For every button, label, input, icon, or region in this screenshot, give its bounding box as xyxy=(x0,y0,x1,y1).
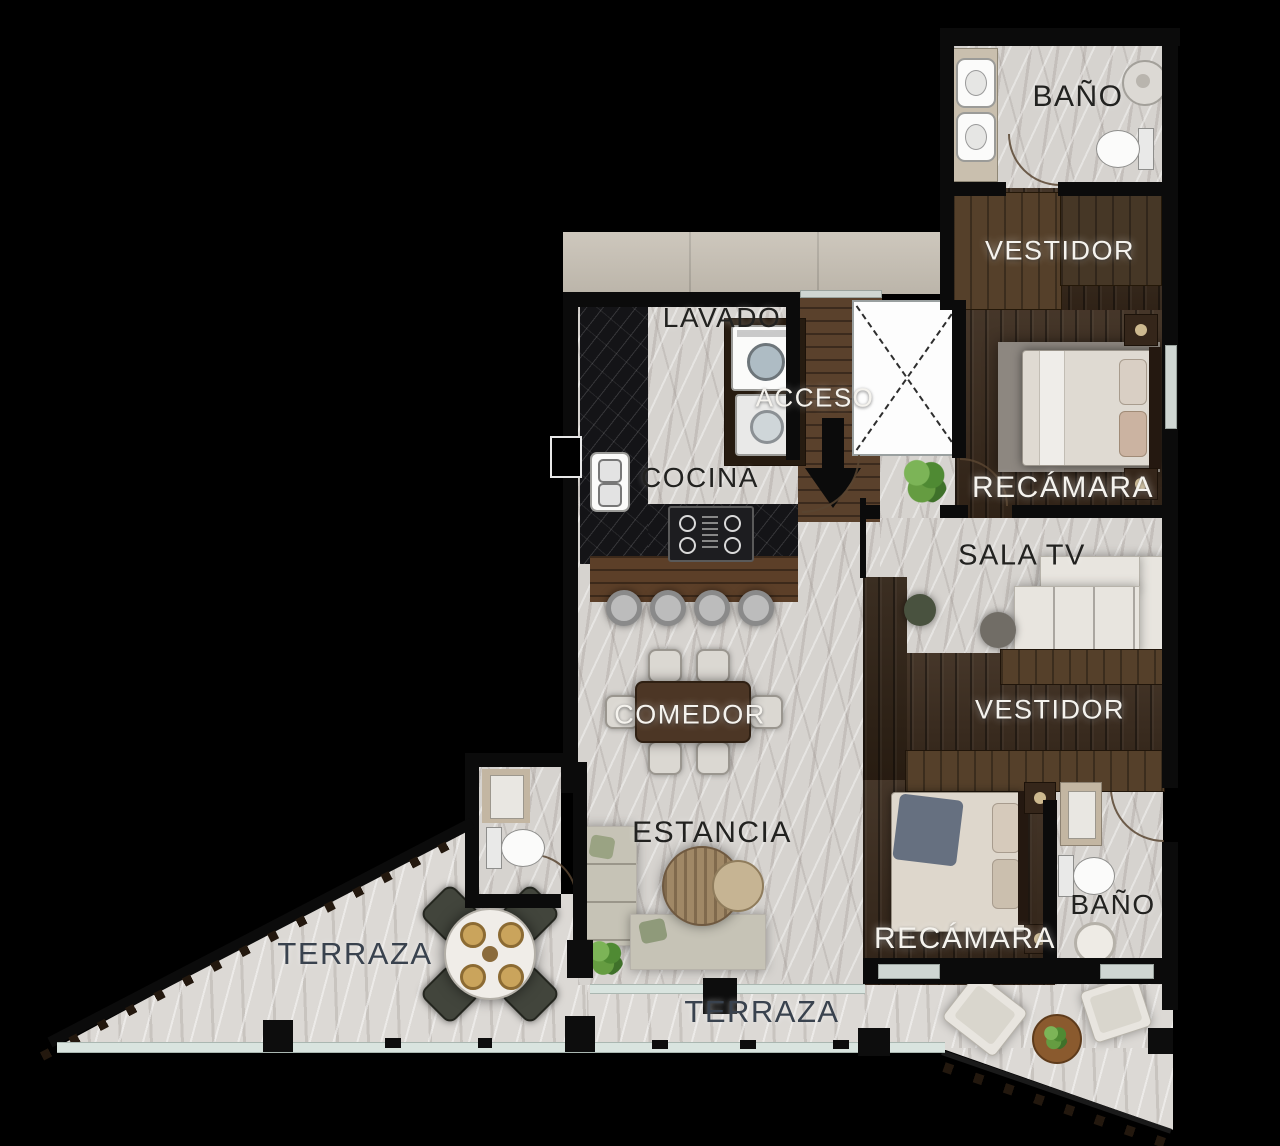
glass-railing xyxy=(57,1042,945,1053)
room-label-lavado: LAVADO xyxy=(663,302,781,334)
bed xyxy=(891,792,1025,932)
wall xyxy=(940,505,968,518)
bed-pillow xyxy=(992,803,1020,853)
room-label-terraza-bottom: TERRAZA xyxy=(684,994,839,1030)
kitchen-counter-left xyxy=(580,294,648,564)
entry-sill xyxy=(800,290,882,298)
room-label-vestidor-mid: VESTIDOR xyxy=(975,695,1125,726)
floor-plan: BAÑO VESTIDOR LAVADO ACCESO COCINA RECÁM… xyxy=(0,0,1280,1146)
halfbath-wall xyxy=(465,894,561,908)
elevator-shaft xyxy=(852,300,962,456)
room-label-comedor: COMEDOR xyxy=(614,700,766,731)
vestidor-mid-closet-column xyxy=(863,577,907,790)
room-label-recamara-bottom: RECÁMARA xyxy=(874,922,1056,956)
halfbath-wall xyxy=(465,753,575,767)
bed-headboard xyxy=(1149,347,1161,469)
bed-throw xyxy=(1039,351,1065,465)
building-corridor xyxy=(563,232,950,294)
kitchen-sink-bowl-1 xyxy=(598,459,622,483)
bar-stool xyxy=(694,590,730,626)
wall xyxy=(786,292,800,460)
room-label-sala-tv: SALA TV xyxy=(958,540,1086,573)
railing-tick xyxy=(385,1038,401,1048)
wall xyxy=(861,505,880,519)
place-setting xyxy=(460,922,486,948)
tv-sofa-back xyxy=(1136,556,1164,656)
railing-post xyxy=(263,1020,293,1052)
room-label-recamara-top: RECÁMARA xyxy=(972,471,1154,505)
toilet xyxy=(486,824,546,870)
wall xyxy=(952,300,966,458)
toilet-bowl xyxy=(501,829,545,867)
bed xyxy=(1022,350,1160,466)
wall xyxy=(1012,505,1163,518)
wall xyxy=(948,182,1006,196)
bar-stool xyxy=(738,590,774,626)
dining-chair xyxy=(648,741,682,775)
coffee-table-small xyxy=(712,860,764,912)
toilet-tank xyxy=(486,827,502,869)
vanity-sink xyxy=(956,58,996,108)
dining-chair xyxy=(696,741,730,775)
bed-pillow xyxy=(1119,411,1147,457)
dining-chair xyxy=(696,649,730,683)
bed-pillow xyxy=(1119,359,1147,405)
room-label-acceso: ACCESO xyxy=(756,383,875,414)
left-wall-window xyxy=(550,436,582,478)
wall xyxy=(940,28,954,310)
bano-bottom-mirror xyxy=(1068,791,1096,839)
bar-stool xyxy=(650,590,686,626)
sink-basin xyxy=(965,70,987,96)
bed-pillow xyxy=(992,859,1020,909)
terrace-round-table xyxy=(444,908,536,1000)
railing-tick xyxy=(478,1038,492,1048)
railing-post xyxy=(567,940,593,978)
wall xyxy=(1162,842,1178,1010)
sink-basin xyxy=(965,124,987,150)
halfbath-mirror xyxy=(490,775,524,819)
wall xyxy=(1058,182,1163,196)
vanity-sink xyxy=(956,112,996,162)
kitchen-sink-bowl-2 xyxy=(598,483,622,507)
room-label-bano-bottom: BAÑO xyxy=(1070,889,1155,921)
tv-sofa-seat xyxy=(1014,586,1140,654)
railing-post xyxy=(1148,1028,1173,1054)
toilet xyxy=(1094,126,1154,172)
wall xyxy=(563,292,578,762)
centerpiece xyxy=(482,946,498,962)
wall xyxy=(940,28,1180,46)
railing-tick xyxy=(833,1040,849,1049)
railing-post xyxy=(565,1016,595,1052)
stove-grill xyxy=(702,516,718,552)
railing-post xyxy=(858,1028,890,1056)
room-label-vestidor-top: VESTIDOR xyxy=(985,236,1135,267)
lounge-cushion xyxy=(1089,984,1143,1034)
lamp xyxy=(1135,324,1147,336)
terrace-door-sill xyxy=(878,964,940,979)
room-label-terraza-left: TERRAZA xyxy=(277,936,432,972)
railing-tick xyxy=(652,1040,668,1049)
room-label-cocina: COCINA xyxy=(641,462,759,494)
nightstand xyxy=(1124,314,1158,346)
stove xyxy=(668,506,754,562)
toilet-bowl xyxy=(1096,130,1140,168)
planter-greens xyxy=(1042,1024,1068,1050)
terrace-planter xyxy=(1032,1014,1082,1064)
place-setting xyxy=(460,964,486,990)
kitchen-sink xyxy=(590,452,630,512)
dryer-door xyxy=(750,410,784,444)
pouf xyxy=(904,594,936,626)
pouf xyxy=(980,612,1016,648)
bar-stool xyxy=(606,590,642,626)
sofa-pillow xyxy=(588,834,615,860)
terrace-door-sill xyxy=(1100,964,1154,979)
room-label-bano-top: BAÑO xyxy=(1032,80,1123,114)
dining-chair xyxy=(648,649,682,683)
place-setting xyxy=(498,964,524,990)
room-label-estancia: ESTANCIA xyxy=(632,816,792,850)
right-wall-window xyxy=(1165,345,1177,429)
place-setting xyxy=(498,922,524,948)
railing-tick xyxy=(740,1040,756,1049)
toilet-tank xyxy=(1138,128,1154,170)
halfbath-vanity xyxy=(482,769,530,823)
bed-throw xyxy=(892,793,964,866)
closet-unit xyxy=(1000,649,1165,685)
bano-bottom-vanity xyxy=(1060,782,1102,846)
washer-door xyxy=(747,343,785,381)
shower-head xyxy=(1136,74,1150,88)
potted-plant xyxy=(900,456,948,504)
